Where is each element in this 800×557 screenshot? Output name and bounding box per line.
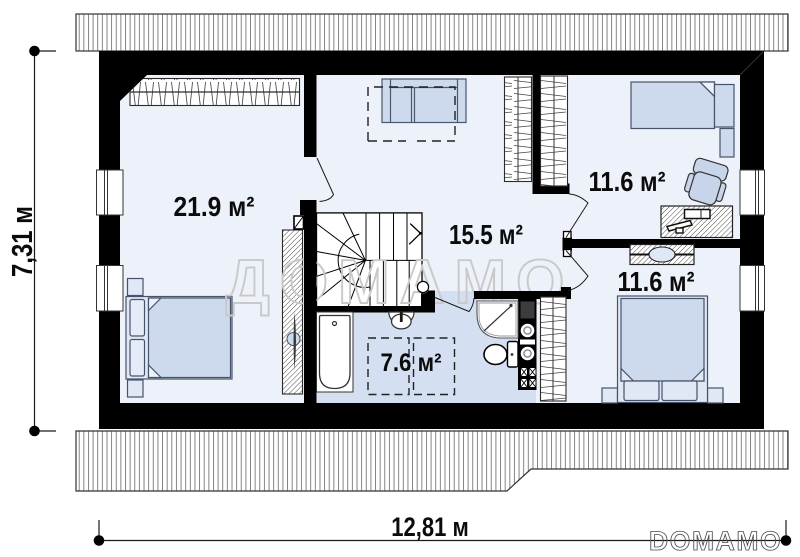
svg-text:12,81 м: 12,81 м xyxy=(391,512,469,542)
svg-text:11.6 м²: 11.6 м² xyxy=(618,266,695,297)
svg-text:11.6 м²: 11.6 м² xyxy=(589,166,666,197)
svg-text:7.6 м²: 7.6 м² xyxy=(381,349,442,377)
svg-text:15.5 м²: 15.5 м² xyxy=(449,219,523,250)
svg-text:21.9 м²: 21.9 м² xyxy=(174,191,255,222)
svg-text:DOMAMO: DOMAMO xyxy=(649,526,782,556)
svg-text:7,31 м: 7,31 м xyxy=(7,206,39,277)
